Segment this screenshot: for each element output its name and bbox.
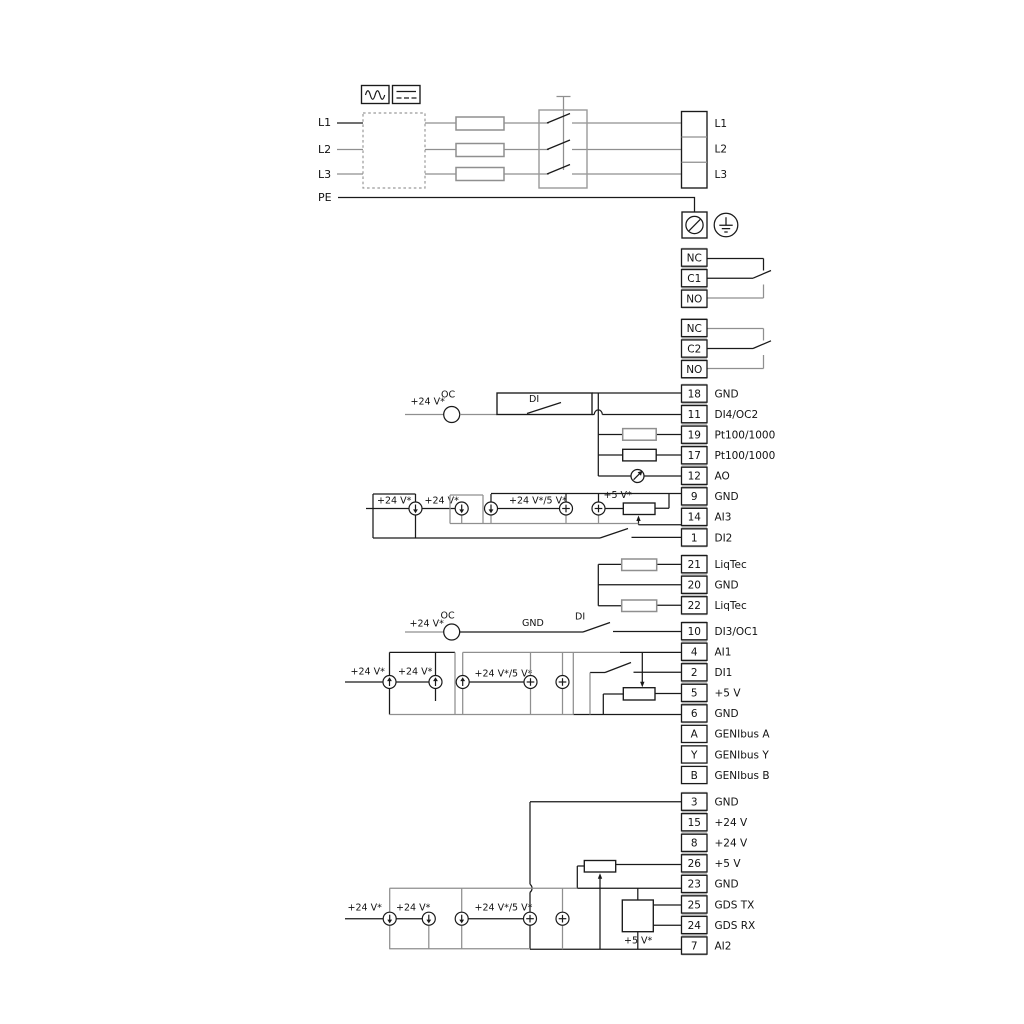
terminal-label: GENIbus Y (715, 749, 770, 761)
terminal-number: 19 (688, 430, 701, 442)
terminal-number: B (691, 770, 698, 782)
plus5-label: +5 V* (604, 490, 633, 501)
terminal-number: NO (686, 364, 702, 376)
terminal-number: 11 (688, 409, 701, 421)
plus24or5-label: +24 V*/5 V* (475, 669, 533, 680)
terminal-label: GND (715, 708, 739, 720)
terminal-group-group_d: AGENIbus AYGENIbus YBGENIbus B (682, 725, 771, 783)
ai1-section: +24 V* +24 V* +24 V*/5 V* (345, 652, 682, 714)
terminal-group-relay2: NCC2NO (682, 318, 708, 379)
label-l3-right: L3 (715, 169, 728, 181)
label-l2-left: L2 (318, 143, 331, 156)
relay1-contact (707, 259, 771, 299)
gds-sensor-box (622, 900, 653, 932)
terminal-label: DI1 (715, 667, 733, 679)
gnd-label: GND (522, 618, 544, 629)
terminal-label: GND (715, 388, 739, 400)
terminal-number: 21 (688, 559, 701, 571)
plus24-label: +24 V* (351, 667, 386, 678)
terminal-label: GDS RX (715, 920, 756, 932)
terminal-label: +24 V (715, 817, 748, 829)
voltage-source-icon (560, 502, 573, 515)
terminal-label: GND (715, 797, 739, 809)
terminal-label: AI1 (715, 647, 732, 659)
plus24-label: +24 V* (377, 496, 412, 507)
terminal-label: Pt100/1000 (715, 430, 776, 442)
oc-label: OC (441, 390, 455, 401)
mains-wires-black (337, 123, 695, 212)
terminal-number: 3 (691, 797, 698, 809)
wires (460, 632, 682, 633)
di-label: DI (575, 612, 585, 623)
relay2-contact (707, 329, 771, 369)
terminal-group-group_c: 10DI3/OC14AI12DI15+5 V6GND (682, 621, 759, 723)
current-source-icon (485, 502, 498, 515)
current-source-icon (383, 912, 396, 925)
option-box-wires (390, 652, 621, 714)
terminal-blocks: NCC1NONCC2NO18GND11DI4/OC219Pt100/100017… (682, 248, 776, 956)
mains-wires-gray (337, 97, 682, 175)
current-source-icon (422, 912, 435, 925)
plus24or5-label: +24 V*/5 V* (475, 903, 533, 914)
terminal-number: 2 (691, 667, 698, 679)
voltage-source-icon (524, 676, 537, 689)
terminal-label: DI4/OC2 (715, 409, 759, 421)
fuse-l3 (456, 168, 504, 181)
terminal-number: 22 (688, 600, 701, 612)
terminal-number: 8 (691, 838, 698, 850)
terminal-number: 10 (688, 626, 701, 638)
plus24-label: +24 V* (410, 619, 445, 630)
plus24-label: +24 V* (398, 667, 433, 678)
terminal-number: 4 (691, 647, 698, 659)
voltage-source-icon (556, 676, 569, 689)
ai2-section: +24 V* +24 V* +24 V*/5 V* +5 V* (345, 802, 682, 950)
meter-needle (634, 474, 640, 480)
di1-switch-blade (605, 663, 631, 673)
fuse-l1 (456, 117, 504, 130)
label-l2-right: L2 (715, 144, 728, 156)
terminal-number: 12 (688, 471, 701, 483)
earth-bars (719, 217, 732, 232)
plus5-label: +5 V* (624, 936, 653, 947)
terminal-group-group_a: 18GND11DI4/OC219Pt100/100017Pt100/100012… (682, 384, 776, 548)
pot-wiper-arrow (636, 516, 640, 522)
current-source-icon (409, 502, 422, 515)
relay1-wires-black (707, 259, 771, 279)
terminal-number: 26 (688, 858, 702, 870)
liqtec-sensor-2 (622, 600, 657, 612)
label-l1-right: L1 (715, 118, 728, 130)
plus24or5-label: +24 V*/5 V* (509, 496, 567, 507)
terminal-number: 9 (691, 491, 698, 503)
relay2-wires-black (707, 341, 771, 349)
terminal-number: A (691, 729, 699, 741)
di3-switch-blade (583, 623, 610, 633)
terminal-number: 15 (688, 817, 701, 829)
terminal-label: +5 V (715, 858, 742, 870)
terminal-number: 14 (688, 512, 702, 524)
terminal-label: DI2 (715, 532, 733, 544)
current-source-icon (429, 676, 442, 689)
voltage-source-icon (524, 912, 537, 925)
potentiometer (584, 861, 615, 873)
terminal-label: LiqTec (715, 600, 748, 612)
terminal-label: GND (715, 491, 739, 503)
terminal-number: 18 (688, 388, 701, 400)
terminal-label: GND (715, 580, 739, 592)
di2-switch-blade (600, 529, 628, 539)
dc-icon (393, 86, 421, 104)
terminal-group-relay1: NCC1NO (682, 248, 708, 309)
terminal-label: LiqTec (715, 559, 748, 571)
di-label: DI (529, 394, 539, 405)
ai3-section: +24 V* +24 V* +24 V*/5 V* +5 V* (366, 490, 682, 538)
terminal-number: 25 (688, 899, 701, 911)
terminal-number: 20 (688, 580, 701, 592)
schematic-canvas: L1 L2 L3 PE L1 L2 L3 +24 V (0, 0, 1024, 1024)
terminal-label: AO (715, 471, 730, 483)
plus24-label: +24 V* (396, 903, 431, 914)
di4-section: +24 V* OC DI (405, 390, 682, 483)
terminal-label: GND (715, 879, 739, 891)
switch-blades (547, 114, 570, 175)
relay1-wires-gray (707, 285, 764, 299)
potentiometer (623, 688, 655, 700)
label-pe-left: PE (318, 191, 332, 204)
current-source-icon (383, 676, 396, 689)
voltage-source-icon (592, 502, 605, 515)
wiring-diagram: L1 L2 L3 PE L1 L2 L3 +24 V (0, 0, 1024, 1024)
terminal-number: 17 (688, 450, 701, 462)
pt100-sensor-1 (623, 429, 657, 441)
plus24-label: +24 V* (348, 903, 383, 914)
terminal-number: Y (690, 749, 698, 761)
terminal-label: GENIbus B (715, 770, 770, 782)
di3-section: +24 V* OC GND DI (405, 611, 682, 641)
oc-label: OC (441, 611, 455, 622)
terminal-label: AI2 (715, 940, 732, 952)
terminal-number: NO (686, 294, 702, 306)
pot-wiper-arrow (598, 873, 602, 879)
current-source-icon (456, 676, 469, 689)
plus24-label: +24 V* (425, 496, 460, 507)
open-collector-icon (444, 624, 460, 640)
open-collector-icon (444, 407, 460, 423)
potentiometer (623, 503, 655, 515)
fuse-l2 (456, 144, 504, 157)
terminal-group-group_b: 21LiqTec20GND22LiqTec (682, 554, 748, 615)
terminal-number: 24 (688, 920, 702, 932)
terminal-number: 1 (691, 532, 698, 544)
terminal-label: +5 V (715, 688, 742, 700)
mains-terminal-block (682, 112, 708, 189)
voltage-source-icon (556, 912, 569, 925)
label-l1-left: L1 (318, 116, 331, 129)
liqtec-section (598, 559, 681, 612)
liqtec-sensor-1 (622, 559, 657, 571)
terminal-number: NC (687, 252, 702, 264)
terminal-number: NC (687, 323, 702, 335)
emc-filter-box (363, 113, 425, 188)
terminal-number: 6 (691, 708, 698, 720)
current-source-icon (455, 502, 468, 515)
terminal-number: C2 (687, 343, 701, 355)
current-source-icon (455, 912, 468, 925)
terminal-number: 5 (691, 688, 698, 700)
label-l3-left: L3 (318, 168, 331, 181)
mains-section: L1 L2 L3 PE L1 L2 L3 (318, 86, 738, 239)
terminal-label: GDS TX (715, 899, 755, 911)
pt100-sensor-2 (623, 449, 657, 461)
plus24-label: +24 V* (411, 397, 446, 408)
terminal-label: GENIbus A (715, 729, 771, 741)
terminal-number: 7 (691, 940, 698, 952)
terminal-label: DI3/OC1 (715, 626, 759, 638)
di-box (497, 393, 592, 415)
terminal-number: C1 (687, 273, 701, 285)
terminal-label: AI3 (715, 512, 732, 524)
terminal-label: Pt100/1000 (715, 450, 776, 462)
terminal-label: +24 V (715, 838, 748, 850)
terminal-group-group_e: 3GND15+24 V8+24 V26+5 V23GND25GDS TX24GD… (682, 792, 756, 956)
terminal-number: 23 (688, 879, 701, 891)
pot-wiper-arrow (640, 682, 644, 688)
